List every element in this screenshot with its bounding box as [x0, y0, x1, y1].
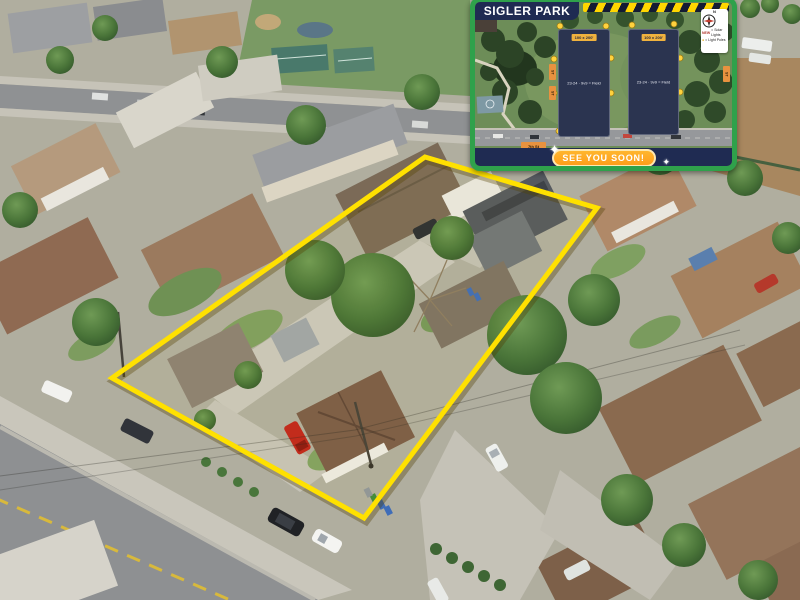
legend-solar-icon: NEW: [702, 31, 710, 36]
street-chip-right: ST: [723, 66, 730, 82]
aerial-photo-composite: 100 x 200' 23-24 · 9v9 = Field 100 x 200…: [0, 0, 800, 600]
playground-sand: [255, 14, 281, 30]
field-1-badge: 100 x 200': [572, 34, 597, 41]
legend-row-poles: ● = Light Poles: [702, 38, 727, 43]
field-2: 100 x 200' 23-24 · 9v9 = Field: [628, 29, 679, 135]
field-1-label: 23-24 · 9v9 = Field: [562, 81, 607, 86]
tennis-courts: [271, 44, 375, 74]
field-2-badge: 100 x 200': [641, 34, 666, 41]
street-chip-left-bottom: ST: [549, 86, 556, 100]
field-2-label: 23-24 · 9v9 = Field: [631, 80, 675, 85]
sparkle-icon: ✦: [662, 157, 670, 168]
field-1: 100 x 200' 23-24 · 9v9 = Field: [558, 29, 610, 137]
legend-pole-label: = Light Poles: [705, 38, 725, 43]
pond: [297, 22, 333, 38]
inset-bottom-bar: SEE YOU SOON!: [475, 148, 732, 166]
inset-legend: N NEW = Solar Lights ● = Light Poles: [701, 9, 728, 53]
inset-basketball-court: [477, 95, 504, 113]
sparkle-icon: ✦: [549, 142, 560, 158]
street-chip-left-top: ST: [549, 64, 556, 80]
legend-row-solar: NEW = Solar Lights: [702, 28, 727, 38]
inset-title: SIGLER PARK: [475, 2, 579, 20]
legend-solar-label: = Solar Lights: [711, 28, 727, 38]
sigler-park-inset-map: 100 x 200' 23-24 · 9v9 = Field 100 x 200…: [470, 0, 737, 171]
legend-pole-icon: ●: [702, 38, 704, 43]
compass-icon: [702, 14, 716, 28]
see-you-soon-banner: SEE YOU SOON!: [552, 149, 656, 167]
